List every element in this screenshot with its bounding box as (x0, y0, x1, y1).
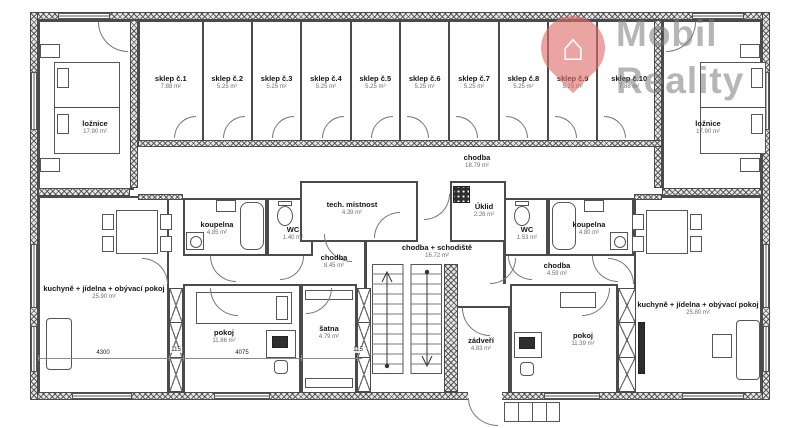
room-label-koupelna-right: koupelna 4.80 m² (573, 220, 606, 238)
room-label-zadveri: zádveří 4.83 m² (468, 336, 494, 354)
toilet-icon (514, 206, 530, 226)
wall-loznice-left-south (38, 188, 130, 196)
room-label-chodba-top: chodba 18.79 m² (464, 153, 491, 171)
chair-icon (102, 214, 114, 230)
room-label: sklep č.3 5.25 m² (261, 75, 293, 93)
window (763, 326, 769, 372)
bathtub-icon (240, 202, 264, 250)
room-sklep-1: sklep č.1 7.88 m² (140, 22, 204, 140)
entrance-steps (504, 402, 560, 422)
room-label-loznice-right: ložnice 17.90 m² (695, 119, 720, 137)
room-sklep-2: sklep č.2 5.25 m² (204, 22, 253, 140)
nightstand-icon (40, 44, 60, 58)
window (31, 244, 37, 308)
sink-icon (216, 200, 236, 212)
room-label-chodba-left: chodba 8.45 m² (321, 253, 348, 271)
dimension-tick (169, 355, 170, 361)
washing-machine-icon (610, 232, 628, 250)
window (214, 393, 270, 399)
room-sklep-4: sklep č.4 5.25 m² (302, 22, 351, 140)
pillow-icon (276, 296, 288, 320)
dimension-tick (38, 355, 39, 361)
room-sklep-9: sklep č.9 5.25 m² (549, 22, 598, 140)
wall-exterior-top (30, 12, 770, 20)
cellar-row: sklep č.1 7.88 m² sklep č.2 5.25 m² skle… (138, 20, 662, 142)
wall-cellars-south (138, 140, 662, 147)
room-label-wc-left: WC 1.40 m² (283, 225, 303, 243)
pillow-icon (57, 114, 69, 134)
monitor-icon (272, 336, 288, 348)
door-swing-icon (223, 116, 245, 138)
chair-icon (160, 214, 172, 230)
room-label: sklep č.7 5.25 m² (458, 75, 490, 93)
dining-table-icon (646, 210, 688, 254)
window (682, 393, 744, 399)
dimension-label: 4300 (95, 350, 110, 356)
door-swing-icon (506, 116, 528, 138)
dimension-line (38, 358, 362, 359)
room-label: sklep č.1 7.88 m² (155, 75, 187, 93)
room-label-kuchyne-right: kuchyně + jídelna + obývací pokoj 25.80 … (637, 300, 758, 318)
door-swing-icon (555, 116, 577, 138)
nightstand-icon (740, 158, 760, 172)
window (72, 393, 132, 399)
room-sklep-7: sklep č.7 5.25 m² (450, 22, 499, 140)
toilet-tank-icon (278, 201, 292, 206)
door-swing-icon (272, 116, 294, 138)
nightstand-icon (740, 44, 760, 58)
dimension-label: 115 (352, 347, 364, 353)
washer-drum-icon (190, 236, 202, 248)
wall-loznice-right-south (662, 188, 762, 196)
shaft-wall-left (169, 288, 183, 392)
shaft-x-icon (358, 358, 370, 391)
dimension-tick (183, 355, 184, 361)
wall-stair-east (444, 264, 458, 392)
pillow-icon (751, 68, 763, 88)
room-label-uklid: Úklid 2.26 m² (474, 202, 494, 220)
closet-shelf-icon (305, 378, 353, 388)
cleaning-rack-icon (453, 186, 470, 203)
room-label: sklep č.2 5.25 m² (211, 75, 243, 93)
room-sklep-6: sklep č.6 5.25 m² (401, 22, 450, 140)
washer-drum-icon (614, 236, 626, 248)
room-label: sklep č.9 5.25 m² (557, 75, 589, 93)
shaft-x-icon (170, 358, 182, 391)
room-label-pokoj-left: pokoj 11.86 m² (212, 328, 235, 346)
cabinet-icon (712, 334, 732, 358)
wall-exterior-bottom (30, 392, 770, 400)
bed-split-line (700, 107, 766, 108)
floor-plan: sklep č.1 7.88 m² sklep č.2 5.25 m² skle… (0, 0, 800, 428)
room-label: sklep č.6 5.25 m² (409, 75, 441, 93)
room-label-schodiste: chodba + schodiště 16.72 m² (402, 243, 472, 261)
room-label-koupelna-left: koupelna 4.85 m² (201, 220, 234, 238)
dimension-tick (357, 355, 358, 361)
staircase (372, 264, 442, 374)
dimension-label: 115 (170, 347, 182, 353)
chair-icon (690, 214, 702, 230)
shaft-x-icon (170, 289, 182, 323)
room-label-loznice-left: ložnice 17.90 m² (82, 119, 107, 137)
dimension-label: 4075 (234, 350, 249, 356)
pillow-icon (57, 68, 69, 88)
room-label: sklep č.4 5.25 m² (310, 75, 342, 93)
wall-loznice-left-east (130, 20, 138, 188)
dining-table-icon (116, 210, 158, 254)
chair-icon (160, 236, 172, 252)
shaft-x-icon (619, 289, 635, 323)
door-swing-icon (508, 256, 532, 280)
room-sklep-8: sklep č.8 5.25 m² (500, 22, 549, 140)
shaft-x-icon (619, 358, 635, 391)
door-swing-icon (322, 116, 344, 138)
room-sklep-10: sklep č.10 7.88 m² (598, 22, 660, 140)
wall-corridor-south-right (634, 194, 662, 200)
door-swing-icon (174, 116, 196, 138)
shaft-x-icon (619, 323, 635, 357)
wall-corridor-south-left (138, 194, 183, 200)
room-label-wc-right: WC 1.53 m² (517, 225, 537, 243)
room-label-satna: šatna 4.79 m² (319, 324, 339, 342)
chair-icon (690, 236, 702, 252)
room-sklep-3: sklep č.3 5.25 m² (253, 22, 302, 140)
door-swing-icon (280, 256, 304, 280)
room-label: sklep č.8 5.25 m² (508, 75, 540, 93)
door-swing-icon (210, 256, 236, 282)
wardrobe-icon (736, 320, 760, 380)
kitchen-counter-icon (638, 322, 645, 374)
door-swing-icon (407, 116, 429, 138)
office-chair-icon (274, 360, 288, 374)
room-sklep-5: sklep č.5 5.25 m² (352, 22, 401, 140)
room-label-pokoj-right: pokoj 11.39 m² (571, 331, 594, 349)
window (31, 326, 37, 372)
pillow-icon (751, 114, 763, 134)
door-swing-icon (456, 116, 478, 138)
window (31, 72, 37, 130)
door-swing-icon (604, 116, 626, 138)
chair-icon (102, 236, 114, 252)
dimension-tick (301, 355, 302, 361)
monitor-icon (519, 337, 535, 349)
window (544, 393, 600, 399)
door-swing-icon (424, 194, 450, 220)
door-swing-icon (468, 398, 498, 426)
chair-icon (632, 236, 644, 252)
chair-icon (632, 214, 644, 230)
window (58, 13, 110, 19)
room-label-chodba-right: chodba 4.59 m² (544, 261, 571, 279)
shaft-x-icon (358, 289, 370, 323)
wall-loznice-right-west (654, 20, 662, 188)
wall-stairhall-west (364, 242, 367, 288)
bed-split-line (54, 107, 120, 108)
window (692, 13, 744, 19)
nightstand-icon (40, 158, 60, 172)
room-label: sklep č.10 7.88 m² (611, 75, 647, 93)
room-label: sklep č.5 5.25 m² (359, 75, 391, 93)
toilet-tank-icon (515, 201, 529, 206)
sofa-icon (46, 318, 72, 370)
door-swing-icon (371, 116, 393, 138)
sink-icon (584, 200, 604, 212)
office-chair-icon (520, 362, 534, 376)
stairs-icon (372, 264, 442, 374)
shaft-wall-center (357, 288, 371, 392)
door-swing-icon (608, 258, 634, 284)
shaft-wall-right (618, 288, 636, 392)
room-label-tech-mistnost: tech. místnost 4.39 m² (327, 200, 378, 218)
room-label-kuchyne-left: kuchyně + jídelna + obývací pokoj 25.90 … (43, 284, 164, 302)
toilet-icon (277, 206, 293, 226)
window (763, 244, 769, 308)
